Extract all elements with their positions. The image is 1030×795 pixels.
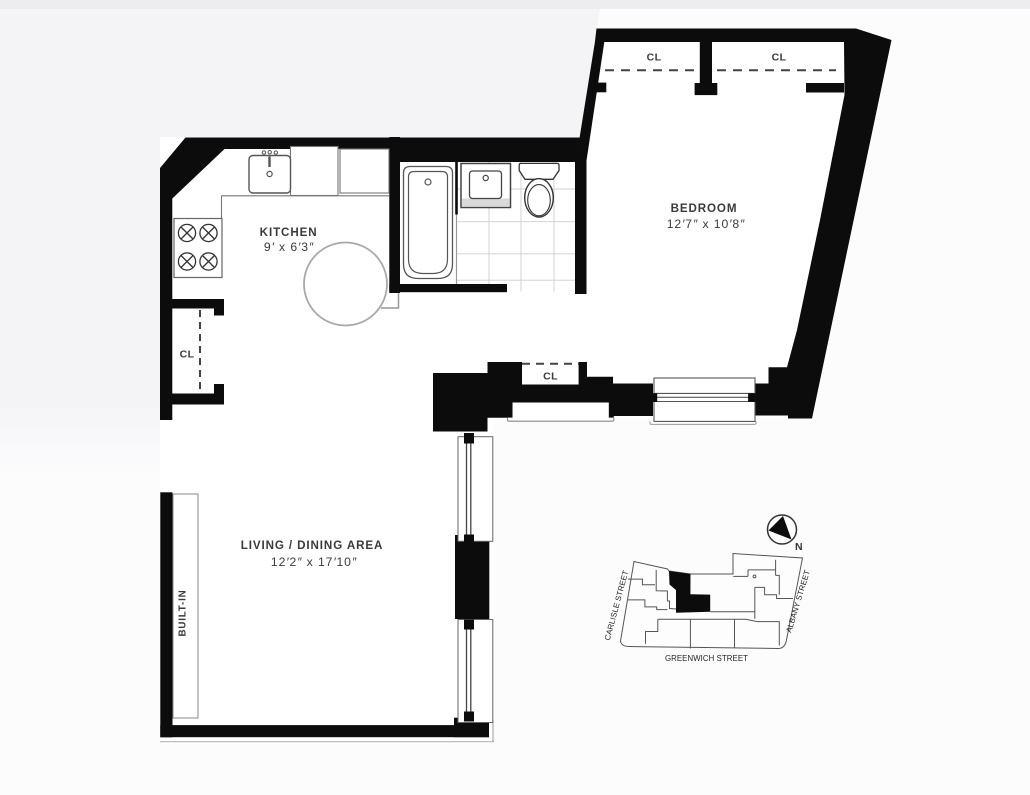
svg-text:12′7″ x 10′8″: 12′7″ x 10′8″ bbox=[667, 217, 745, 231]
svg-text:BUILT-IN: BUILT-IN bbox=[178, 589, 189, 636]
svg-text:KITCHEN: KITCHEN bbox=[260, 226, 318, 239]
svg-text:CL: CL bbox=[543, 371, 558, 383]
svg-text:CL: CL bbox=[180, 349, 195, 361]
svg-text:CL: CL bbox=[772, 52, 787, 64]
svg-text:GREENWICH STREET: GREENWICH STREET bbox=[665, 654, 748, 663]
svg-text:12′2″ x 17′10″: 12′2″ x 17′10″ bbox=[271, 555, 357, 569]
svg-text:LIVING / DINING AREA: LIVING / DINING AREA bbox=[241, 539, 384, 552]
svg-text:CL: CL bbox=[647, 52, 662, 64]
svg-text:BEDROOM: BEDROOM bbox=[671, 202, 738, 215]
svg-text:N: N bbox=[795, 541, 803, 553]
svg-text:9′ x 6′3″: 9′ x 6′3″ bbox=[264, 240, 314, 254]
